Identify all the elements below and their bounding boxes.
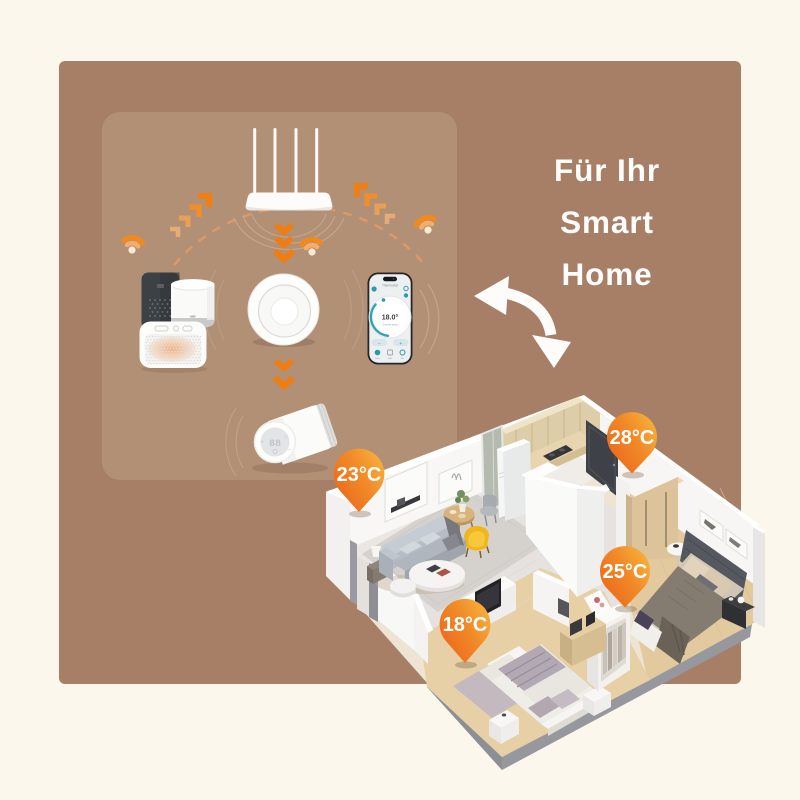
svg-text:Add: Add [388,357,392,360]
svg-text:−: − [378,341,381,347]
svg-text:+: + [399,341,402,347]
svg-text:18.0°: 18.0° [382,314,399,322]
svg-text:Home: Home [375,358,381,360]
svg-text:Thermostat: Thermostat [382,284,398,288]
svg-text:88: 88 [269,439,281,450]
svg-text:−: − [287,447,291,454]
svg-text:+: + [260,439,264,446]
svg-text:18°C: 18°C [443,614,488,636]
svg-text:25°C: 25°C [603,561,648,583]
svg-text:28°C: 28°C [610,427,655,449]
svg-text:°C: °C [284,434,289,439]
svg-text:Current temp: Current temp [382,323,398,327]
svg-text:23°C: 23°C [337,464,382,486]
